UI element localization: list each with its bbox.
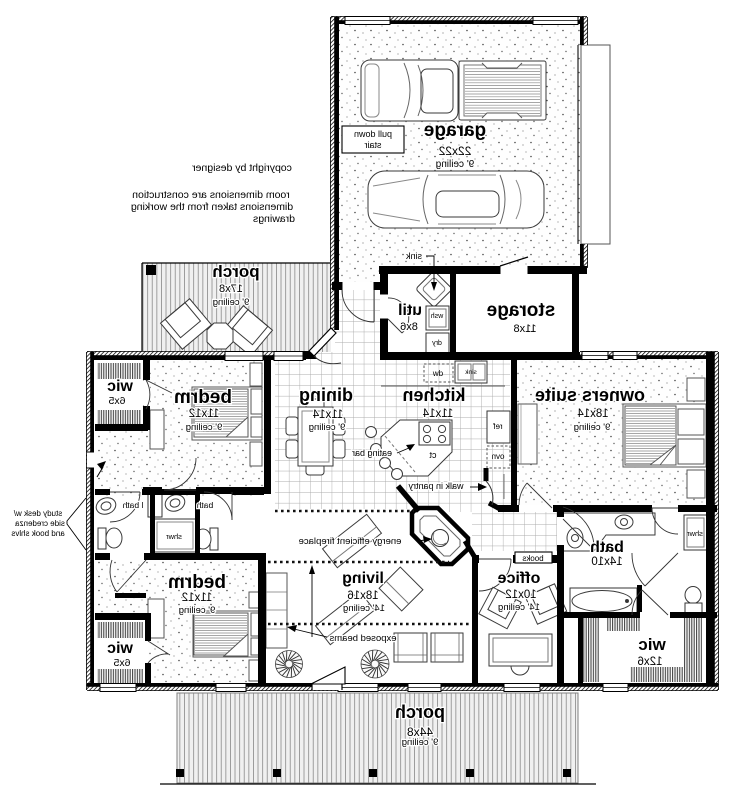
svg-text:dining: dining xyxy=(299,385,353,405)
svg-text:energy efficient fireplace: energy efficient fireplace xyxy=(299,536,402,547)
svg-text:17x8: 17x8 xyxy=(219,283,243,295)
svg-text:bedrm: bedrm xyxy=(168,572,226,593)
svg-text:9' ceiling: 9' ceiling xyxy=(436,159,475,170)
svg-text:bedrm: bedrm xyxy=(174,387,232,408)
svg-text:garage: garage xyxy=(424,120,486,141)
svg-text:8x6: 8x6 xyxy=(400,321,418,333)
svg-text:dry: dry xyxy=(432,340,442,347)
svg-text:11x12: 11x12 xyxy=(189,408,219,420)
svg-text:14' ceiling: 14' ceiling xyxy=(498,602,540,613)
svg-text:wic: wic xyxy=(107,640,134,657)
svg-text:eating bar: eating bar xyxy=(352,448,392,458)
svg-text:storage: storage xyxy=(487,300,556,321)
svg-text:dimensions taken from the work: dimensions taken from the working xyxy=(131,201,293,213)
svg-text:owners suite: owners suite xyxy=(535,385,645,405)
svg-text:22x22: 22x22 xyxy=(438,144,471,158)
svg-text:ovn: ovn xyxy=(492,452,505,461)
svg-text:shwr: shwr xyxy=(687,529,703,538)
svg-text:6x5: 6x5 xyxy=(113,657,130,669)
svg-text:stair: stair xyxy=(364,140,381,150)
svg-text:and book shlvs: and book shlvs xyxy=(11,529,64,538)
svg-text:living: living xyxy=(342,570,384,587)
svg-text:bath: bath xyxy=(590,539,624,556)
svg-text:ref: ref xyxy=(493,422,503,431)
svg-text:9' ceiling: 9' ceiling xyxy=(309,422,346,433)
svg-text:dw: dw xyxy=(433,369,443,378)
svg-text:drawings: drawings xyxy=(253,213,295,225)
svg-text:walk in pantry: walk in pantry xyxy=(408,481,465,491)
svg-text:11x8: 11x8 xyxy=(513,323,536,335)
svg-text:pull down: pull down xyxy=(354,129,392,139)
svg-text:porch: porch xyxy=(212,262,259,281)
svg-text:14x10: 14x10 xyxy=(591,556,622,568)
svg-text:l bath: l bath xyxy=(122,500,143,510)
svg-text:9' ceiling: 9' ceiling xyxy=(574,422,611,433)
svg-text:6x5: 6x5 xyxy=(108,395,125,407)
svg-text:18x14: 18x14 xyxy=(577,408,609,420)
svg-text:11x12: 11x12 xyxy=(182,592,212,604)
svg-text:12x6: 12x6 xyxy=(638,656,663,668)
svg-text:wic: wic xyxy=(638,635,666,654)
svg-text:10x12: 10x12 xyxy=(505,589,536,601)
svg-text:sink: sink xyxy=(406,251,423,261)
svg-text:14' ceiling: 14' ceiling xyxy=(343,603,385,614)
svg-text:wic: wic xyxy=(107,378,134,395)
svg-text:study desk w/: study desk w/ xyxy=(13,509,62,518)
svg-text:9' ceiling: 9' ceiling xyxy=(186,422,223,433)
svg-text:wsh: wsh xyxy=(431,313,445,320)
svg-text:ct: ct xyxy=(429,450,437,460)
svg-text:bath: bath xyxy=(196,500,213,510)
svg-text:side credenza: side credenza xyxy=(15,519,65,528)
svg-text:11x14: 11x14 xyxy=(422,408,453,420)
svg-text:exposed beams: exposed beams xyxy=(329,633,396,644)
svg-text:kitchen: kitchen xyxy=(402,385,465,405)
svg-text:office: office xyxy=(498,570,541,587)
svg-text:9' ceiling: 9' ceiling xyxy=(213,297,250,308)
svg-text:11x14: 11x14 xyxy=(312,409,343,421)
svg-text:9' ceiling: 9' ceiling xyxy=(402,737,439,748)
svg-text:util: util xyxy=(398,302,422,319)
svg-text:porch: porch xyxy=(395,702,445,722)
svg-text:room dimensions are constructi: room dimensions are construction xyxy=(132,189,290,201)
svg-text:shwr: shwr xyxy=(166,532,182,541)
svg-text:sink: sink xyxy=(464,369,476,376)
svg-text:9' ceiling: 9' ceiling xyxy=(179,605,216,616)
svg-text:books: books xyxy=(522,554,543,563)
svg-text:copyright by designer: copyright by designer xyxy=(192,162,292,174)
svg-text:18x16: 18x16 xyxy=(347,590,378,602)
